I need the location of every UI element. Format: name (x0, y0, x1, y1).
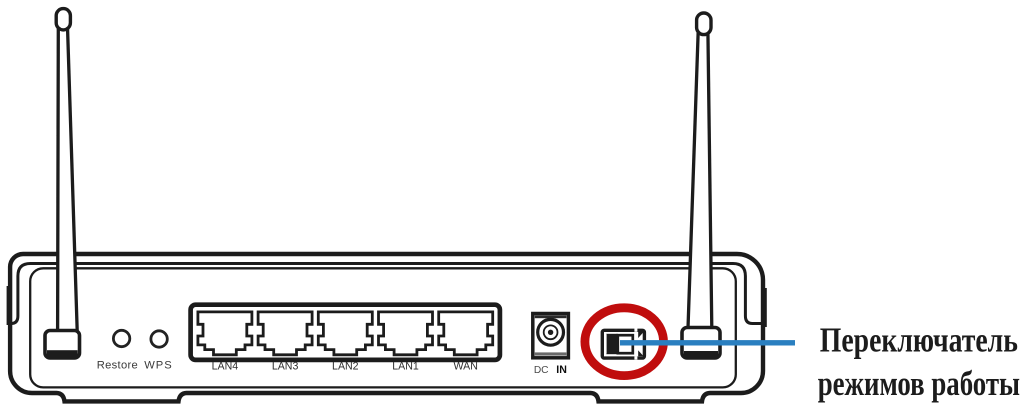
svg-text:LAN1: LAN1 (392, 361, 419, 373)
svg-text:LAN4: LAN4 (212, 361, 239, 373)
svg-text:IN: IN (556, 364, 567, 376)
svg-text:Переключатель: Переключатель (820, 320, 1018, 359)
svg-text:WPS: WPS (144, 360, 172, 372)
svg-text:Restore: Restore (97, 360, 138, 372)
svg-text:DC: DC (534, 365, 549, 376)
svg-text:режимов работы: режимов работы (818, 364, 1020, 403)
svg-text:LAN2: LAN2 (332, 361, 359, 373)
svg-text:WAN: WAN (454, 361, 478, 373)
svg-text:LAN3: LAN3 (272, 361, 299, 373)
